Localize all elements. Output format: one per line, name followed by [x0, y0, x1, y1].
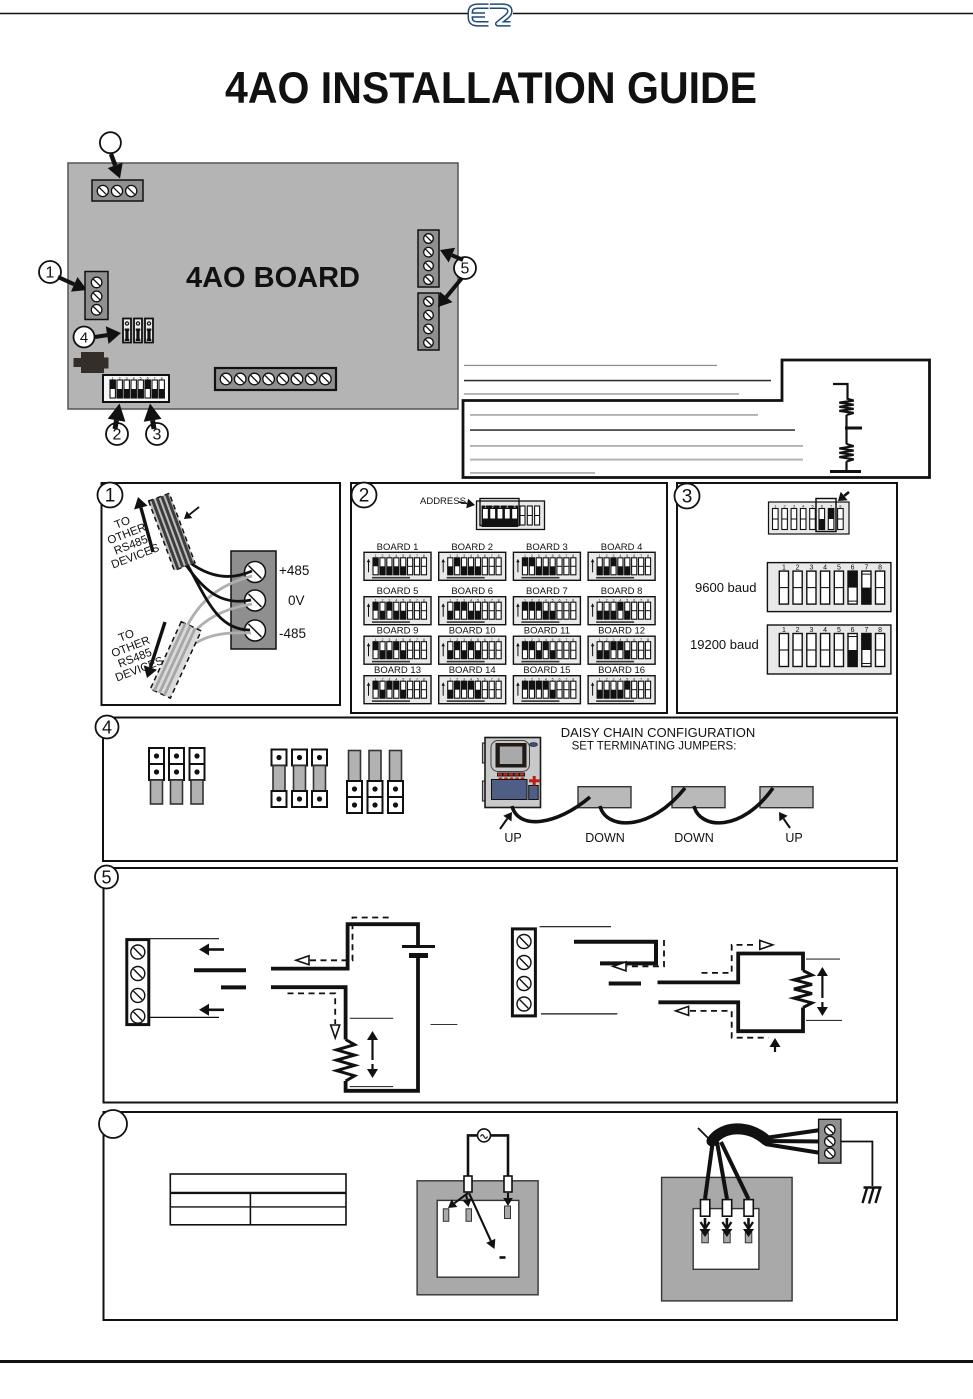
- svg-text:BOARD 13: BOARD 13: [374, 665, 421, 676]
- svg-text:7: 7: [830, 505, 832, 509]
- svg-text:6: 6: [851, 564, 855, 571]
- svg-text:DOWN: DOWN: [585, 831, 625, 845]
- svg-text:BOARD 9: BOARD 9: [377, 626, 419, 637]
- svg-text:BOARD 8: BOARD 8: [601, 586, 643, 597]
- svg-text:1: 1: [46, 265, 55, 282]
- svg-text:3: 3: [793, 505, 795, 509]
- svg-text:BOARD 4: BOARD 4: [601, 542, 643, 553]
- svg-text:5: 5: [837, 627, 841, 634]
- svg-text:0V: 0V: [288, 593, 305, 608]
- svg-text:BOARD 2: BOARD 2: [451, 542, 493, 553]
- svg-text:BOARD 7: BOARD 7: [526, 586, 568, 597]
- svg-text:4: 4: [506, 505, 508, 509]
- svg-text:1: 1: [782, 564, 786, 571]
- svg-text:3: 3: [499, 505, 501, 509]
- svg-text:BOARD 16: BOARD 16: [598, 665, 645, 676]
- svg-text:SET TERMINATING JUMPERS:: SET TERMINATING JUMPERS:: [572, 741, 737, 753]
- svg-text:BOARD 14: BOARD 14: [449, 665, 496, 676]
- svg-text:BOARD 10: BOARD 10: [449, 626, 496, 637]
- svg-text:2: 2: [796, 564, 800, 571]
- svg-text:5: 5: [837, 564, 841, 571]
- svg-text:UP: UP: [504, 831, 521, 845]
- svg-text:4: 4: [823, 627, 827, 634]
- svg-text:1: 1: [484, 505, 486, 509]
- svg-text:8: 8: [878, 627, 882, 634]
- svg-text:4: 4: [802, 505, 804, 509]
- svg-text:ADDRESS: ADDRESS: [420, 496, 466, 507]
- svg-text:3: 3: [153, 427, 162, 444]
- svg-text:BOARD 15: BOARD 15: [523, 665, 570, 676]
- svg-text:DAISY CHAIN CONFIGURATION: DAISY CHAIN CONFIGURATION: [561, 725, 756, 740]
- svg-text:8: 8: [839, 505, 841, 509]
- svg-text:3: 3: [682, 487, 693, 508]
- svg-text:7: 7: [864, 564, 868, 571]
- svg-text:DOWN: DOWN: [674, 831, 714, 845]
- svg-text:-485: -485: [279, 626, 306, 641]
- svg-text:5: 5: [811, 505, 813, 509]
- svg-text:9600 baud: 9600 baud: [695, 580, 756, 595]
- svg-text:4: 4: [102, 717, 112, 737]
- svg-text:4: 4: [80, 329, 88, 346]
- svg-text:4AO BOARD: 4AO BOARD: [186, 262, 360, 294]
- svg-text:BOARD 3: BOARD 3: [526, 542, 568, 553]
- svg-text:2: 2: [796, 627, 800, 634]
- svg-text:2: 2: [784, 505, 786, 509]
- svg-text:6: 6: [821, 505, 823, 509]
- svg-text:8: 8: [878, 564, 882, 571]
- svg-text:6: 6: [851, 627, 855, 634]
- svg-text:UP: UP: [785, 831, 802, 845]
- svg-text:5: 5: [461, 261, 470, 278]
- svg-text:19200 baud: 19200 baud: [690, 637, 759, 652]
- svg-text:1: 1: [774, 505, 776, 509]
- svg-text:+485: +485: [279, 563, 309, 578]
- svg-text:3: 3: [809, 564, 813, 571]
- svg-text:BOARD 11: BOARD 11: [524, 626, 570, 637]
- svg-text:BOARD 5: BOARD 5: [377, 586, 419, 597]
- svg-text:1: 1: [105, 486, 116, 507]
- svg-text:BOARD 6: BOARD 6: [451, 586, 493, 597]
- svg-text:5: 5: [514, 505, 516, 509]
- svg-text:BOARD 12: BOARD 12: [598, 626, 645, 637]
- svg-text:BOARD 1: BOARD 1: [377, 542, 419, 553]
- svg-text:4: 4: [823, 564, 827, 571]
- svg-text:1: 1: [782, 627, 786, 634]
- svg-text:2: 2: [359, 486, 370, 507]
- svg-text:2: 2: [492, 505, 494, 509]
- svg-text:3: 3: [809, 627, 813, 634]
- svg-text:5: 5: [101, 867, 111, 887]
- svg-text:7: 7: [864, 627, 868, 634]
- svg-text:4AO INSTALLATION GUIDE: 4AO INSTALLATION GUIDE: [225, 64, 757, 113]
